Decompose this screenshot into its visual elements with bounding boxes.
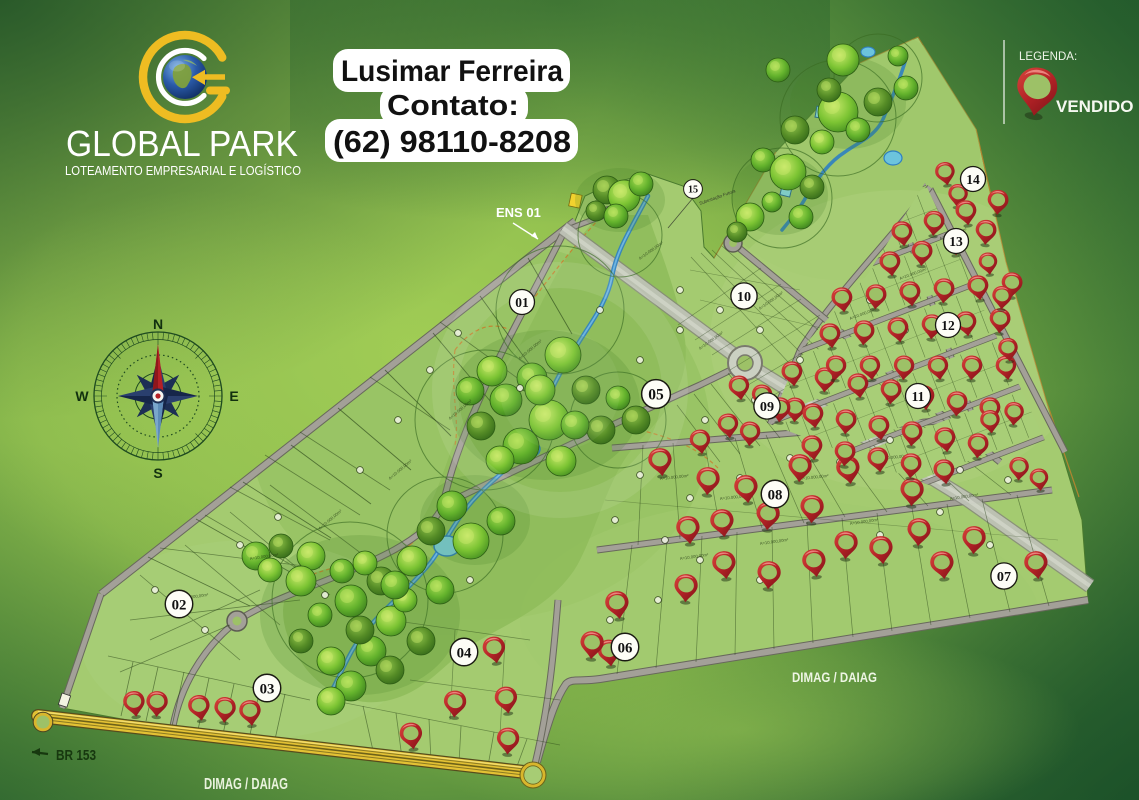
- svg-text:14: 14: [966, 172, 980, 187]
- svg-text:(62) 98110-8208: (62) 98110-8208: [333, 124, 571, 159]
- svg-text:01: 01: [515, 295, 529, 310]
- svg-text:W: W: [75, 388, 89, 404]
- svg-text:VENDIDO: VENDIDO: [1056, 97, 1133, 116]
- svg-text:11: 11: [912, 389, 925, 404]
- svg-text:12: 12: [941, 318, 955, 333]
- svg-text:ENS 01: ENS 01: [496, 205, 541, 220]
- svg-text:15: 15: [688, 185, 698, 196]
- svg-text:Lusimar Ferreira: Lusimar Ferreira: [341, 55, 563, 88]
- svg-text:02: 02: [172, 597, 187, 613]
- svg-text:13: 13: [949, 234, 963, 249]
- svg-text:LEGENDA:: LEGENDA:: [1019, 51, 1077, 63]
- svg-text:06: 06: [618, 640, 633, 656]
- svg-text:E: E: [229, 388, 238, 404]
- svg-text:10: 10: [737, 289, 751, 305]
- svg-text:DIMAG / DAIAG: DIMAG / DAIAG: [792, 669, 877, 685]
- svg-text:05: 05: [648, 387, 664, 404]
- svg-text:08: 08: [768, 487, 783, 503]
- svg-text:Contato:: Contato:: [387, 90, 519, 122]
- svg-text:GLOBAL PARK: GLOBAL PARK: [66, 123, 298, 164]
- svg-text:S: S: [153, 465, 162, 481]
- svg-text:LOTEAMENTO EMPRESARIAL E LOGÍS: LOTEAMENTO EMPRESARIAL E LOGÍSTICO: [65, 163, 301, 178]
- svg-text:03: 03: [260, 681, 275, 697]
- svg-text:07: 07: [997, 569, 1011, 585]
- svg-text:N: N: [153, 316, 163, 332]
- svg-text:DIMAG / DAIAG: DIMAG / DAIAG: [204, 776, 288, 793]
- svg-text:BR 153: BR 153: [56, 747, 96, 764]
- svg-text:04: 04: [457, 645, 472, 661]
- svg-text:09: 09: [760, 399, 774, 415]
